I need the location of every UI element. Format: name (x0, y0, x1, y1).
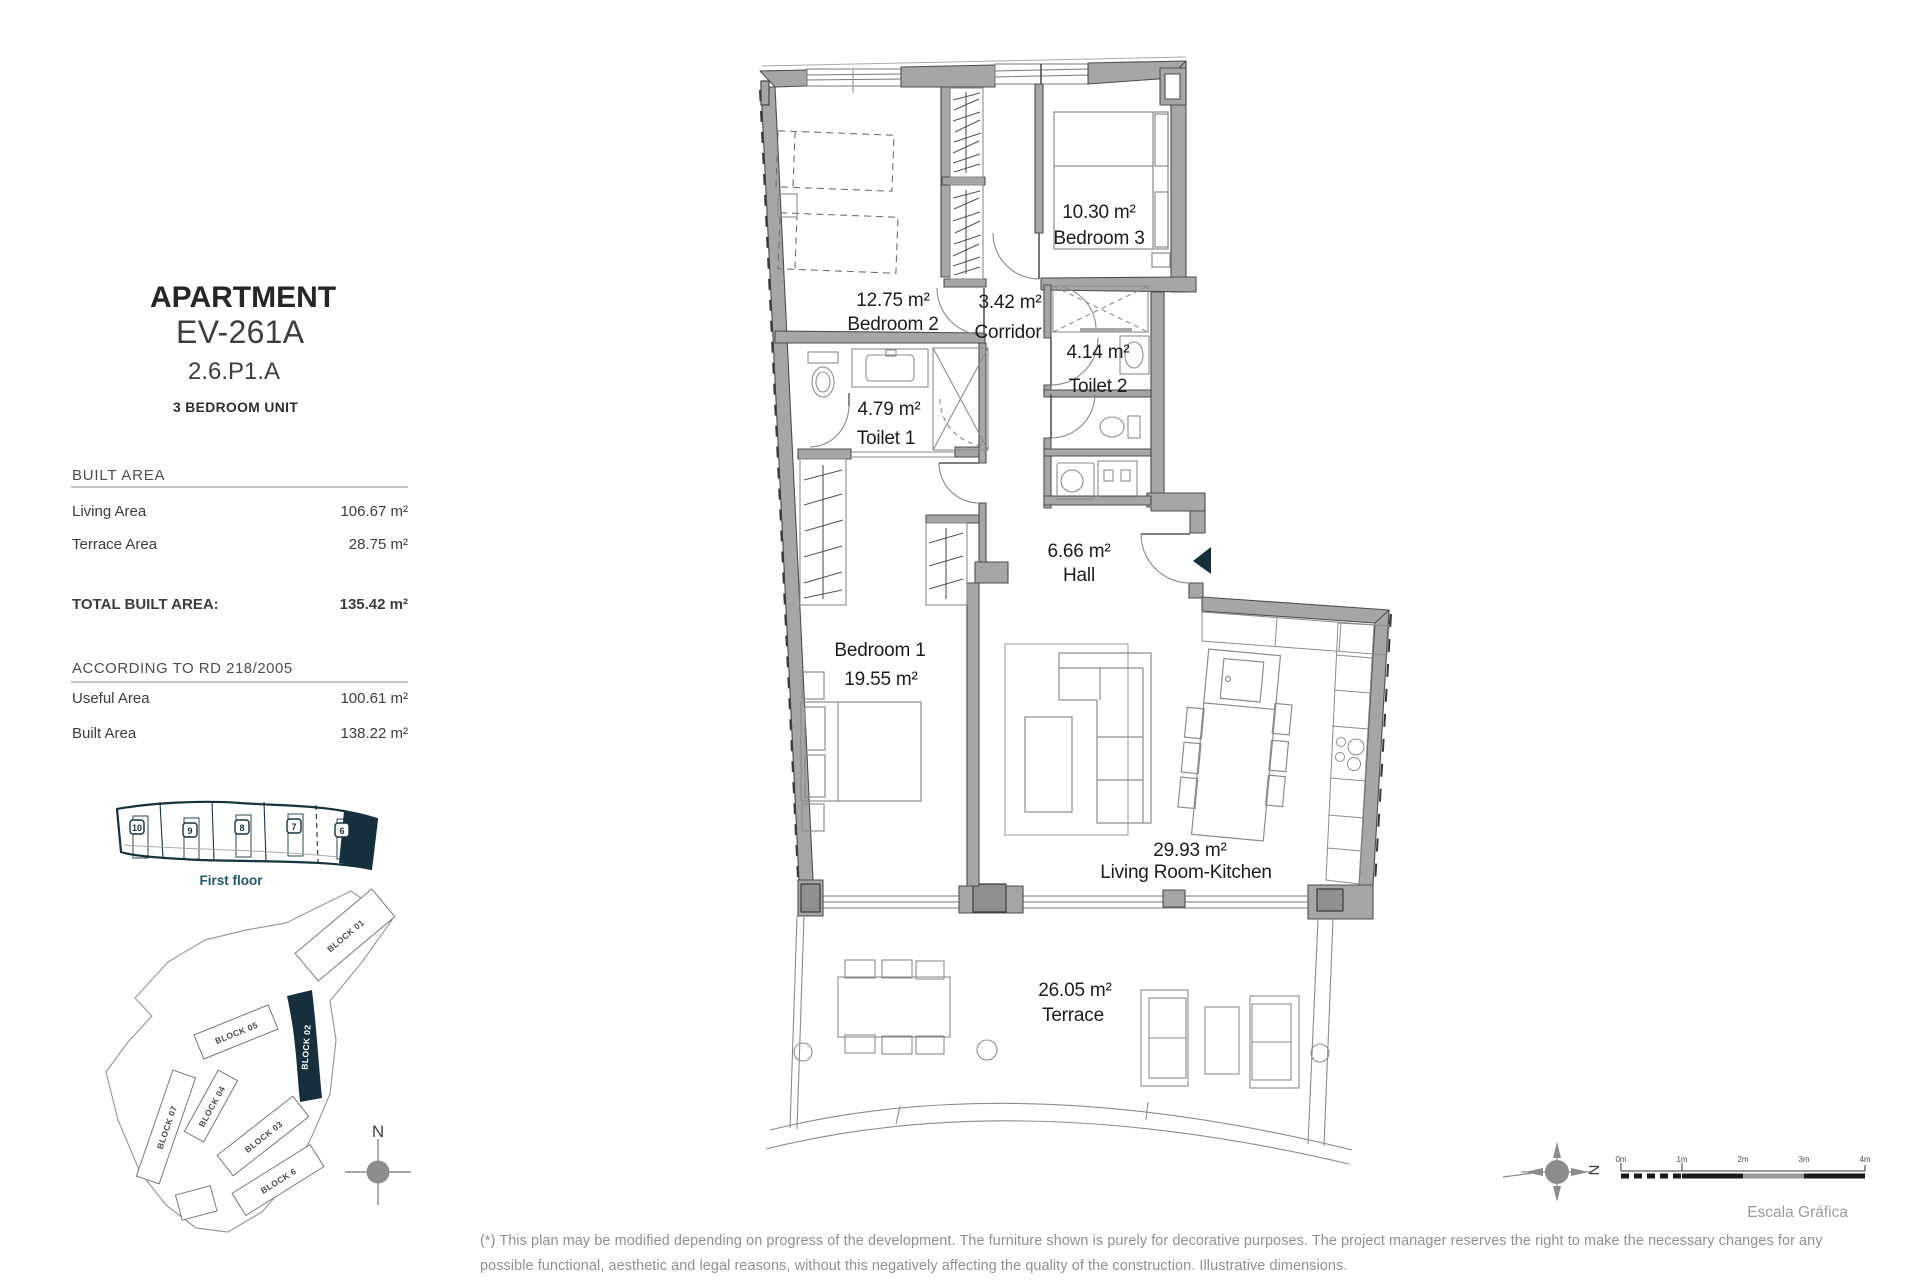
svg-text:Living Area: Living Area (72, 503, 147, 520)
svg-text:4.14 m²: 4.14 m² (1066, 342, 1129, 363)
svg-text:1m: 1m (1676, 1155, 1687, 1164)
svg-text:28.75 m²: 28.75 m² (349, 536, 408, 553)
svg-text:2.6.P1.A: 2.6.P1.A (188, 358, 280, 385)
svg-text:Escala Gráfica: Escala Gráfica (1747, 1204, 1848, 1221)
svg-text:ACCORDING TO RD 218/2005: ACCORDING TO RD 218/2005 (72, 660, 293, 677)
svg-text:3.42 m²: 3.42 m² (978, 292, 1041, 313)
svg-text:2m: 2m (1737, 1155, 1748, 1164)
svg-text:0m: 0m (1615, 1155, 1626, 1164)
svg-text:(*) This plan may be modified: (*) This plan may be modified depending … (480, 1233, 1823, 1249)
svg-text:Bedroom 3: Bedroom 3 (1053, 228, 1144, 249)
svg-text:Useful Area: Useful Area (72, 690, 150, 707)
svg-text:Toilet 2: Toilet 2 (1069, 376, 1128, 397)
svg-text:Hall: Hall (1063, 565, 1095, 586)
svg-text:Bedroom 1: Bedroom 1 (834, 640, 925, 661)
svg-text:6: 6 (339, 826, 344, 836)
svg-text:Terrace Area: Terrace Area (72, 536, 158, 553)
svg-text:3m: 3m (1798, 1155, 1809, 1164)
svg-text:N: N (1585, 1165, 1602, 1176)
svg-text:7: 7 (291, 822, 296, 832)
svg-text:8: 8 (239, 823, 244, 833)
svg-text:100.61 m²: 100.61 m² (340, 690, 408, 707)
svg-text:First floor: First floor (200, 873, 264, 888)
svg-text:4m: 4m (1859, 1155, 1870, 1164)
svg-text:6.66 m²: 6.66 m² (1047, 541, 1110, 562)
svg-text:Living Room-Kitchen: Living Room-Kitchen (1100, 862, 1272, 883)
svg-text:Terrace: Terrace (1042, 1005, 1104, 1026)
svg-text:3 BEDROOM UNIT: 3 BEDROOM UNIT (173, 400, 298, 415)
svg-text:10: 10 (132, 823, 142, 833)
svg-text:Corridor: Corridor (974, 322, 1042, 343)
svg-text:26.05 m²: 26.05 m² (1038, 980, 1111, 1001)
svg-text:4.79 m²: 4.79 m² (857, 399, 920, 420)
svg-text:Built Area: Built Area (72, 725, 137, 742)
svg-text:BUILT AREA: BUILT AREA (72, 467, 165, 484)
svg-text:Bedroom 2: Bedroom 2 (847, 314, 938, 335)
svg-text:106.67 m²: 106.67 m² (340, 503, 408, 520)
svg-text:9: 9 (187, 826, 192, 836)
svg-text:APARTMENT: APARTMENT (150, 281, 336, 314)
svg-text:TOTAL BUILT AREA:: TOTAL BUILT AREA: (72, 596, 219, 613)
svg-text:10.30 m²: 10.30 m² (1062, 202, 1135, 223)
svg-text:135.42 m²: 135.42 m² (340, 596, 408, 613)
svg-text:19.55 m²: 19.55 m² (844, 669, 917, 690)
svg-text:29.93 m²: 29.93 m² (1153, 840, 1226, 861)
svg-text:possible functional, aesthetic: possible functional, aesthetic and legal… (480, 1258, 1347, 1274)
svg-text:138.22 m²: 138.22 m² (340, 725, 408, 742)
svg-text:EV-261A: EV-261A (176, 314, 305, 350)
svg-text:N: N (372, 1122, 384, 1141)
svg-text:Toilet 1: Toilet 1 (857, 428, 916, 449)
svg-text:12.75 m²: 12.75 m² (856, 290, 929, 311)
